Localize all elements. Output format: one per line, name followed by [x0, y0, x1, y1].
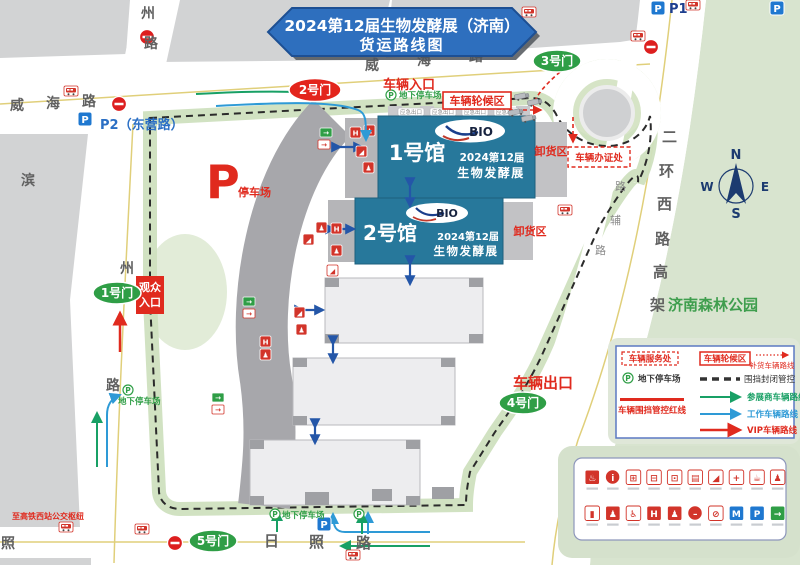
underground-parking-icon	[354, 509, 364, 519]
svg-text:◢: ◢	[297, 310, 303, 318]
road-label: 环	[659, 162, 674, 180]
icon-caption-placeholder	[628, 488, 640, 490]
svg-text:⊡: ⊡	[671, 474, 679, 484]
road-label: 路	[595, 244, 606, 257]
hall2-expo-line2: 生物发酵展	[434, 244, 499, 258]
no-entry-icon	[644, 40, 659, 55]
svg-text:M: M	[732, 510, 741, 520]
facility-icon-panel: ♨i⊞⊟⊡▤◢+☕♟▮♟♿H♟–⊘MP→	[558, 446, 800, 558]
icon-caption-placeholder	[710, 488, 722, 490]
road-label: 路	[144, 35, 159, 52]
underground-parking-label: 地下停车场	[399, 90, 442, 101]
icon-caption-placeholder	[772, 488, 784, 490]
gate-2: 2号门	[289, 79, 341, 102]
bio-logo: BIO	[406, 203, 468, 223]
road-label: 二	[662, 128, 677, 146]
bus-hub-label: 至高铁西站公交枢纽	[12, 511, 84, 521]
svg-text:◢: ◢	[330, 268, 336, 276]
compass-s: S	[731, 207, 740, 222]
visitor-entrance-line1: 观众	[139, 280, 162, 294]
road-label: 日	[264, 532, 279, 550]
hall2-name: 2号馆	[363, 221, 417, 245]
svg-text:☕: ☕	[753, 474, 761, 484]
map-canvas: P P → →	[0, 0, 800, 565]
legend-service-office: 车辆服务处	[629, 354, 672, 365]
compass-e: E	[761, 180, 769, 194]
bus-stop-icon	[64, 86, 78, 96]
svg-text:▤: ▤	[691, 474, 700, 484]
no-entry-icon	[112, 97, 127, 112]
road-label: 西	[657, 195, 672, 213]
svg-text:⊞: ⊞	[630, 474, 638, 484]
stairs-icon: ◢	[356, 146, 367, 157]
icon-caption-placeholder	[731, 488, 743, 490]
parking-p1-label: P1	[669, 2, 688, 17]
exit-icon	[318, 140, 330, 149]
parking-icon	[770, 1, 784, 15]
road-label: 州	[140, 6, 155, 22]
svg-text:H: H	[263, 339, 269, 347]
legend-waiting-area: 车辆轮候区	[704, 354, 747, 365]
parking-big-p: P	[206, 155, 240, 209]
bio-logo-text: BIO	[436, 207, 458, 220]
bio-logo-text: BIO	[469, 125, 493, 139]
svg-text:♟: ♟	[366, 128, 372, 136]
bus-stop-icon	[59, 522, 73, 532]
service-icon: ♟	[363, 162, 374, 173]
svg-text:+: +	[733, 474, 741, 484]
road-label: 照	[1, 536, 15, 552]
parking-p2-icon	[78, 112, 92, 126]
gate-3-label: 3号门	[541, 53, 573, 68]
toilet-icon: H	[350, 127, 361, 138]
road-label: 路	[106, 377, 121, 394]
svg-text:♟: ♟	[609, 510, 617, 520]
hall1-expo-line1: 2024第12届	[460, 151, 525, 164]
hall1-expo-line2: 生物发酵展	[457, 165, 525, 180]
svg-text:H: H	[353, 130, 359, 138]
parking-lot-text: 停车场	[238, 185, 271, 199]
road-label: 架	[649, 296, 665, 314]
svg-text:H: H	[650, 510, 658, 520]
banner-subtitle: 货运路线图	[359, 36, 444, 54]
parking-p1-icon	[651, 1, 665, 15]
svg-text:▮: ▮	[590, 510, 595, 520]
legend-fence-control: 围挡封闭管控	[744, 374, 796, 385]
icon-caption-placeholder	[648, 524, 660, 526]
gate-2-label: 2号门	[299, 82, 331, 97]
icon-caption-placeholder	[731, 524, 743, 526]
hall2-expo-line1: 2024第12届	[437, 230, 499, 243]
legend-underground-parking-icon	[623, 373, 633, 383]
icon-caption-placeholder	[587, 524, 599, 526]
svg-text:♟: ♟	[365, 165, 371, 173]
legend-exhibitor-route: 参展商车辆路线	[747, 392, 800, 403]
title-banner: 2024第12届生物发酵展（济南） 货运路线图	[268, 8, 540, 60]
toilet-icon: H	[331, 223, 342, 234]
permit-office-box: 车辆办证处	[568, 147, 630, 167]
svg-text:⊟: ⊟	[650, 474, 658, 484]
visitor-entrance-line2: 入口	[139, 296, 161, 309]
icon-caption-placeholder	[669, 524, 681, 526]
escalator-icon: ◢	[327, 265, 338, 276]
svg-text:♟: ♟	[774, 474, 782, 484]
road-label: 路	[615, 180, 626, 193]
svg-text:♟: ♟	[333, 248, 339, 256]
icon-caption-placeholder	[587, 488, 599, 490]
freight-route-map: { "banner": { "line1": "2024第12届生物发酵展（济南…	[0, 0, 800, 565]
road-label: 滨	[21, 172, 35, 189]
parking-p2-label: P2（东营路）	[100, 117, 184, 133]
hall-4	[293, 358, 455, 425]
restroom-icon: ♟	[316, 222, 327, 233]
icon-caption-placeholder	[690, 524, 702, 526]
toilet-icon: H	[260, 336, 271, 347]
road-label: 州	[119, 261, 134, 277]
unloading-area-label: 卸货区	[514, 224, 547, 238]
hall1-east-wing	[535, 122, 567, 197]
icon-caption-placeholder	[772, 524, 784, 526]
exit-icon	[212, 393, 224, 402]
gate-1-label: 1号门	[101, 285, 133, 300]
permit-office-label: 车辆办证处	[575, 152, 623, 164]
icon-caption-placeholder	[628, 524, 640, 526]
icon-caption-placeholder	[751, 488, 763, 490]
svg-text:♟: ♟	[298, 327, 304, 335]
legend-redline-swatch	[620, 398, 684, 401]
svg-text:♨: ♨	[588, 474, 596, 484]
legend: 车辆服务处 车辆轮候区 补货车辆路线 地下停车场 围挡封闭管控 车辆围挡管控红线…	[608, 338, 800, 444]
underground-parking-icon	[270, 509, 280, 519]
legend-vip-route: VIP车辆路线	[747, 425, 797, 436]
svg-text:♟: ♟	[671, 510, 679, 520]
gate-5: 5号门	[189, 530, 237, 552]
bus-stop-icon	[686, 0, 700, 10]
service-icon: ♟	[331, 245, 342, 256]
svg-text:–: –	[693, 510, 698, 520]
emergency-exit-tag: 应急出口	[400, 108, 422, 116]
road-label: 高	[653, 263, 668, 281]
svg-text:◢: ◢	[359, 149, 365, 157]
exit-icon	[320, 128, 332, 137]
no-entry-icon	[168, 536, 183, 551]
exit-icon	[212, 405, 224, 414]
icon-caption-placeholder	[710, 524, 722, 526]
icon-caption-placeholder	[690, 488, 702, 490]
stairs-icon: ◢	[303, 234, 314, 245]
gate-3: 3号门	[533, 50, 581, 72]
svg-text:→: →	[774, 510, 782, 520]
banner-title: 2024第12届生物发酵展（济南）	[284, 16, 519, 35]
svg-text:◢: ◢	[712, 474, 719, 484]
legend-staff-route: 工作车辆路线	[747, 409, 799, 420]
bus-stop-icon	[558, 205, 572, 215]
road-label: 海	[46, 95, 60, 112]
gate-1: 1号门	[93, 282, 141, 304]
icon-caption-placeholder	[607, 488, 619, 490]
vehicle-exit-label: 车辆出口	[513, 374, 573, 392]
hall-3	[325, 278, 483, 343]
gate-4-label: 4号门	[507, 395, 539, 410]
underground-parking-label: 地下停车场	[282, 510, 325, 521]
road-label: 照	[309, 533, 324, 551]
icon-caption-placeholder	[648, 488, 660, 490]
hall-2: 2号馆 BIO 2024第12届 生物发酵展	[355, 198, 503, 264]
hall1-name: 1号馆	[389, 141, 446, 165]
svg-text:◢: ◢	[306, 237, 312, 245]
stairs-icon: ◢	[294, 307, 305, 318]
svg-text:♟: ♟	[262, 352, 268, 360]
restroom-icon: ♟	[260, 349, 271, 360]
compass-n: N	[731, 148, 742, 163]
road-label: 路	[356, 534, 372, 552]
road-label: 辅	[610, 213, 621, 227]
road-label: 威	[10, 97, 24, 114]
service-icon: ♟	[296, 324, 307, 335]
exit-icon	[243, 309, 255, 318]
waiting-area-label: 车辆轮候区	[450, 94, 505, 108]
gate-4: 4号门	[499, 392, 547, 414]
compass-w: W	[700, 180, 713, 194]
legend-fence-redline: 车辆围挡管控红线	[618, 405, 687, 416]
hall-1: 1号馆 BIO 2024第12届 生物发酵展	[378, 116, 535, 198]
icon-caption-placeholder	[751, 524, 763, 526]
bus-stop-icon	[135, 524, 149, 534]
gate-5-label: 5号门	[197, 533, 229, 548]
road-label: 路	[655, 230, 671, 248]
bus-stop-icon	[522, 7, 536, 17]
unloading-area-label: 卸货区	[535, 144, 568, 158]
bio-logo: BIO	[435, 120, 505, 143]
svg-text:P: P	[754, 510, 761, 520]
underground-parking-label: 地下停车场	[118, 396, 161, 407]
forest-park-label: 济南森林公园	[668, 296, 758, 314]
svg-text:⊘: ⊘	[712, 510, 720, 520]
svg-text:H: H	[334, 226, 340, 234]
svg-text:♿: ♿	[629, 510, 637, 520]
svg-text:i: i	[611, 474, 614, 484]
road-label: 路	[82, 93, 97, 110]
exit-icon	[243, 297, 255, 306]
waiting-area-box: 车辆轮候区	[443, 92, 511, 109]
roundabout-island	[581, 87, 633, 139]
legend-restock-route: 补货车辆路线	[750, 360, 795, 370]
underground-parking-icon	[123, 385, 133, 395]
bus-stop-icon	[631, 31, 645, 41]
city-block	[0, 0, 130, 58]
svg-text:♟: ♟	[318, 225, 324, 233]
icon-caption-placeholder	[669, 488, 681, 490]
icon-caption-placeholder	[607, 524, 619, 526]
hall-5	[250, 440, 420, 505]
legend-underground-parking: 地下停车场	[638, 374, 681, 385]
